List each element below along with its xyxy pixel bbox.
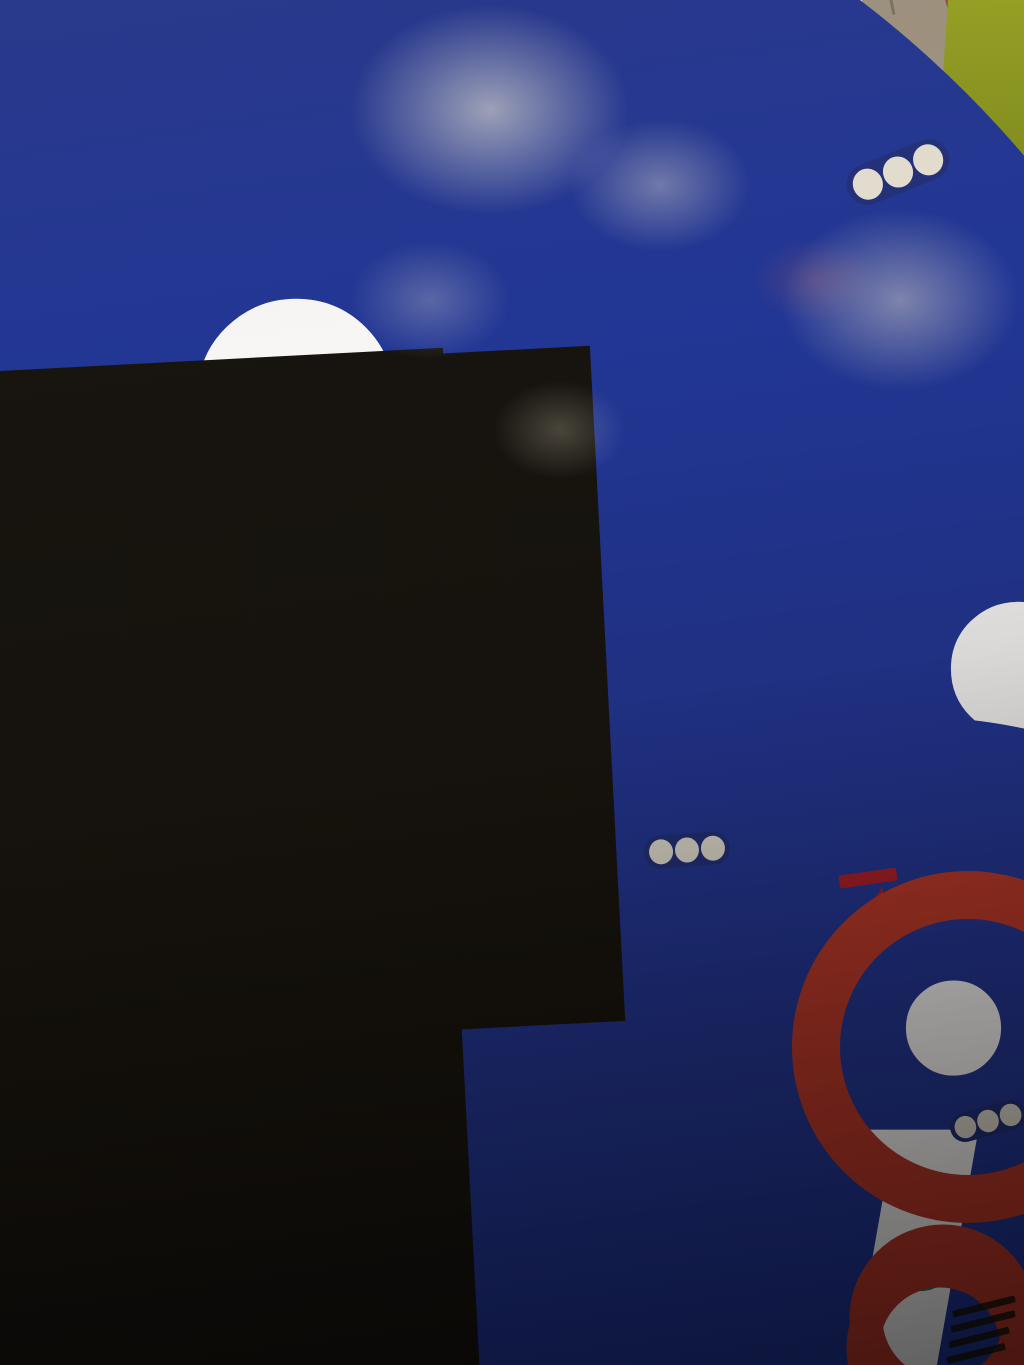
map-photo-stage: 現在地 You are Here （12）麻布図書館 ■Azabu Librar…	[0, 0, 1024, 1365]
bus-window	[674, 837, 700, 864]
bus-window	[908, 140, 948, 180]
bus-stop-icon	[643, 831, 731, 870]
bus-window	[700, 835, 726, 862]
bus-window	[648, 839, 674, 866]
label-layer: 現在地 You are Here （12）麻布図書館 ■Azabu Librar…	[0, 0, 1024, 1365]
poi-square-marker	[0, 477, 480, 1365]
